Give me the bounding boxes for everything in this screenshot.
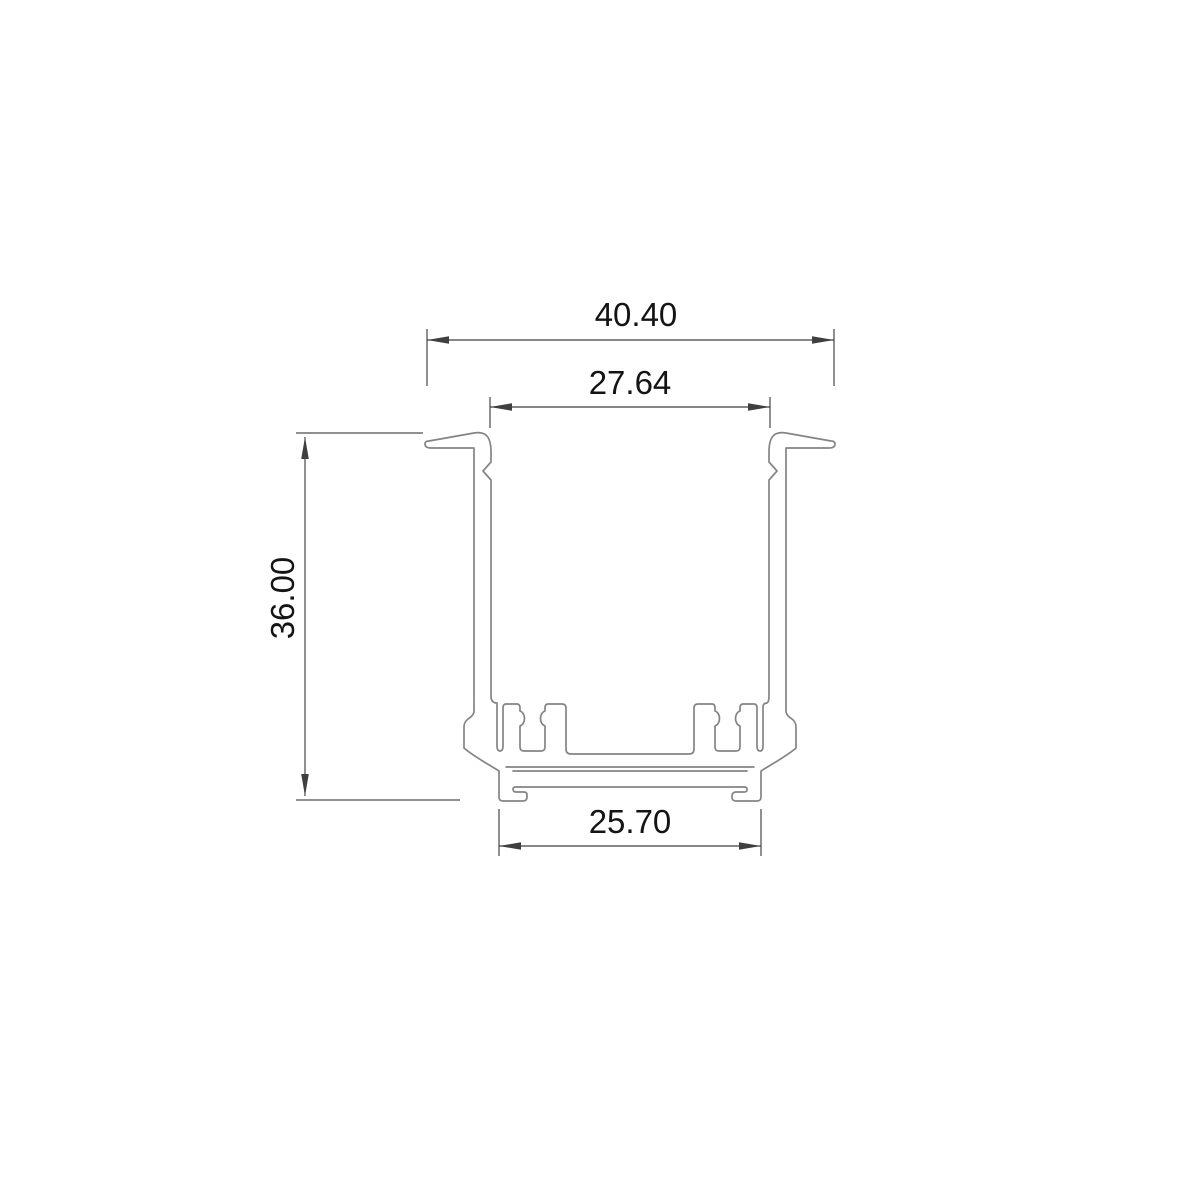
dim-label-top-width: 40.40: [595, 296, 678, 333]
dimension-height: 36.00: [264, 433, 460, 800]
arrowhead-top: [301, 437, 309, 459]
arrowhead-left: [490, 403, 512, 411]
dim-label-inner-width: 27.64: [589, 364, 672, 401]
dimension-inner-width: 27.64: [490, 364, 770, 428]
dim-label-height: 36.00: [264, 557, 301, 640]
profile-outline: [425, 433, 835, 801]
arrowhead-left: [499, 842, 521, 850]
arrowhead-right: [812, 336, 834, 344]
profile-drawing-svg: 40.40 27.64 36.00 25.70: [0, 0, 1200, 1200]
dim-label-bottom-width: 25.70: [589, 803, 672, 840]
arrowhead-right: [739, 842, 761, 850]
arrowhead-right: [748, 403, 770, 411]
arrowhead-left: [427, 336, 449, 344]
arrowhead-bottom: [301, 774, 309, 796]
drawing-sheet: 40.40 27.64 36.00 25.70: [0, 0, 1200, 1200]
profile-cross-section: [425, 433, 835, 801]
dimension-bottom-width: 25.70: [499, 803, 761, 856]
